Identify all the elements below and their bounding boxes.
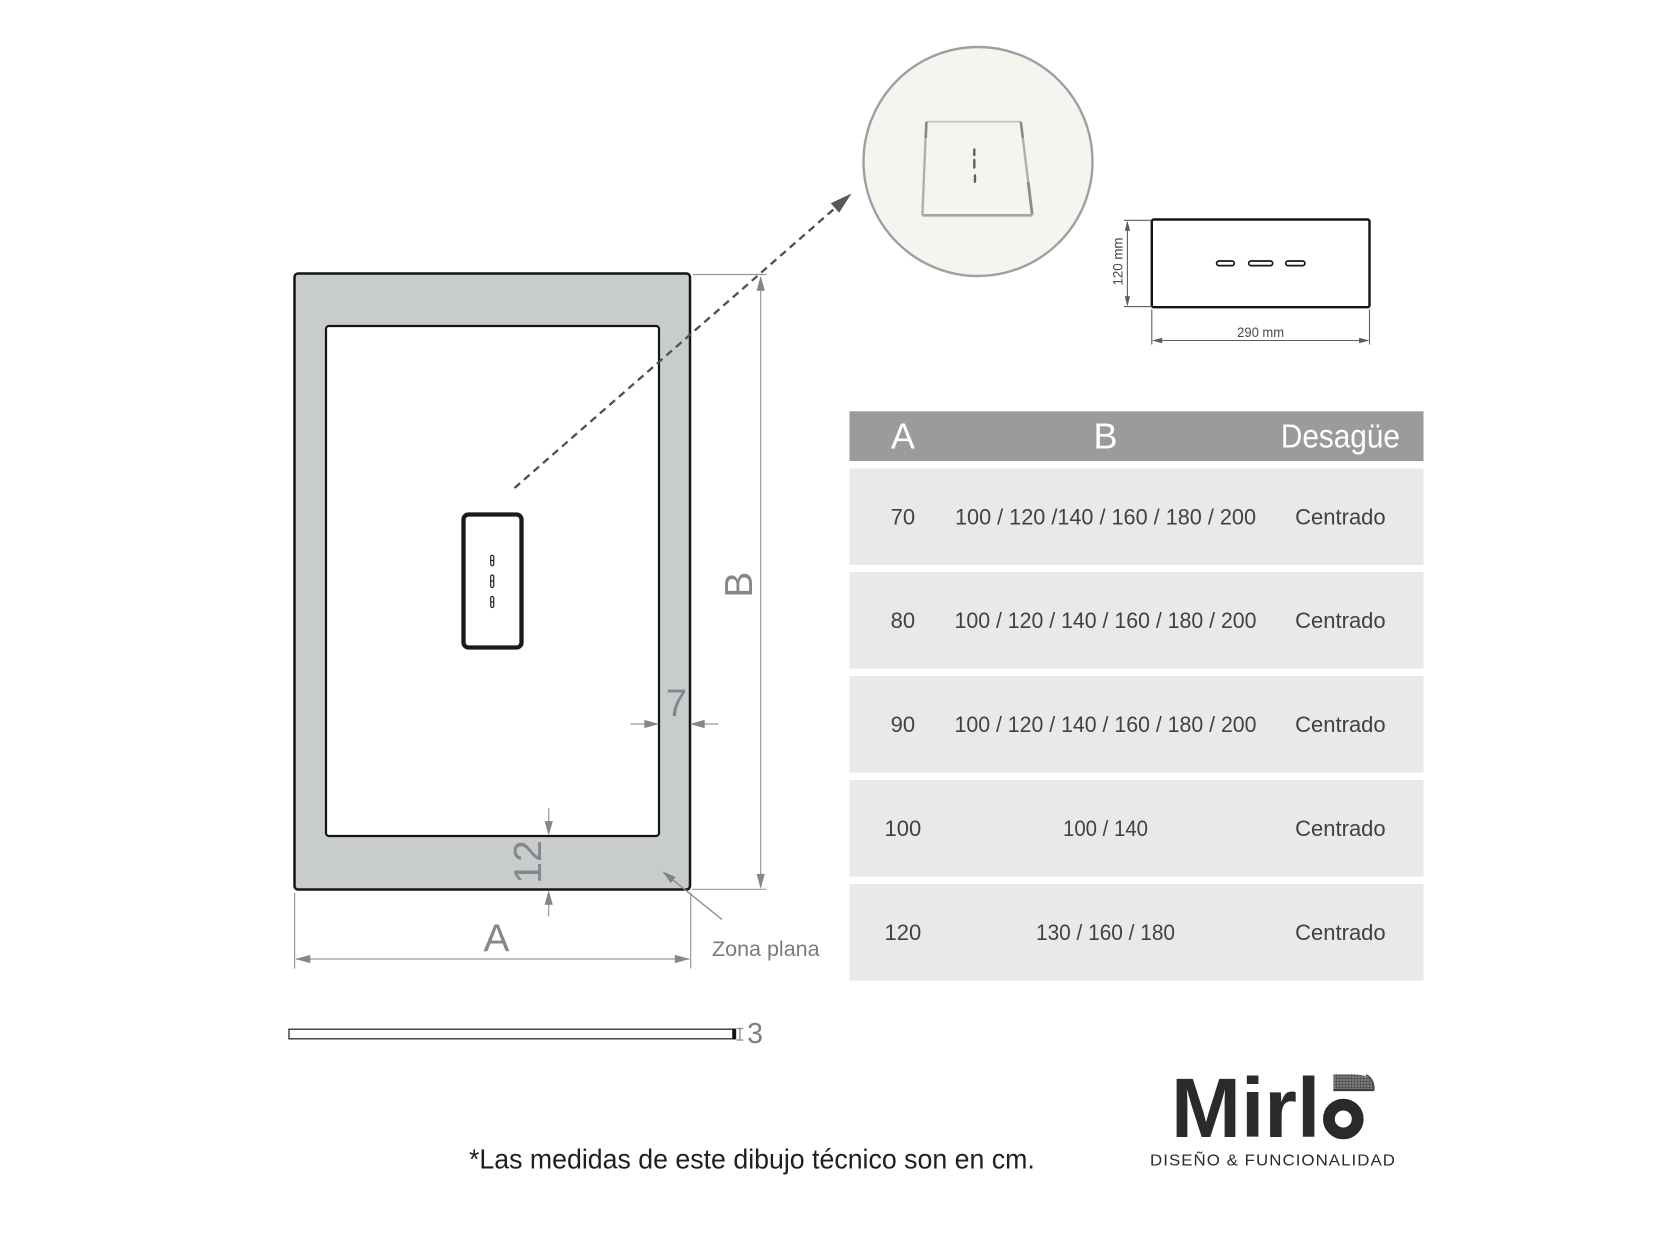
svg-text:100 / 120 / 140 / 160 / 180 /: 100 / 120 / 140 / 160 / 180 / 200 bbox=[955, 608, 1257, 633]
svg-text:80: 80 bbox=[891, 608, 915, 633]
svg-text:100: 100 bbox=[885, 816, 922, 841]
svg-text:90: 90 bbox=[891, 712, 915, 737]
svg-text:120 mm: 120 mm bbox=[1109, 238, 1125, 286]
svg-text:Centrado: Centrado bbox=[1295, 505, 1386, 530]
svg-text:Centrado: Centrado bbox=[1295, 608, 1386, 633]
svg-text:100 / 140: 100 / 140 bbox=[1063, 816, 1148, 841]
svg-text:290 mm: 290 mm bbox=[1237, 324, 1284, 340]
svg-text:100 / 120 /140 / 160 / 180 /: 100 / 120 /140 / 160 / 180 / 200 bbox=[955, 505, 1256, 530]
svg-text:Desagüe: Desagüe bbox=[1281, 417, 1400, 454]
svg-text:Mirl: Mirl bbox=[1171, 1061, 1320, 1155]
svg-text:70: 70 bbox=[891, 505, 915, 530]
svg-text:3: 3 bbox=[747, 1018, 763, 1050]
svg-text:130 / 160 / 180: 130 / 160 / 180 bbox=[1036, 920, 1175, 945]
svg-text:Centrado: Centrado bbox=[1295, 920, 1386, 945]
svg-text:B: B bbox=[718, 572, 761, 598]
svg-text:100 / 120 / 140 / 160 / 180 /: 100 / 120 / 140 / 160 / 180 / 200 bbox=[955, 712, 1257, 737]
svg-text:Centrado: Centrado bbox=[1295, 816, 1386, 841]
svg-text:A: A bbox=[483, 918, 509, 961]
svg-text:12: 12 bbox=[507, 840, 550, 883]
svg-text:*Las medidas de este dibujo té: *Las medidas de este dibujo técnico son … bbox=[469, 1144, 1035, 1175]
svg-text:A: A bbox=[891, 415, 915, 456]
svg-text:Centrado: Centrado bbox=[1295, 712, 1386, 737]
svg-text:Zona plana: Zona plana bbox=[712, 937, 820, 961]
svg-text:DISEÑO & FUNCIONALIDAD: DISEÑO & FUNCIONALIDAD bbox=[1150, 1150, 1396, 1170]
svg-text:B: B bbox=[1093, 415, 1117, 456]
svg-text:7: 7 bbox=[666, 683, 687, 725]
svg-text:120: 120 bbox=[885, 920, 922, 945]
